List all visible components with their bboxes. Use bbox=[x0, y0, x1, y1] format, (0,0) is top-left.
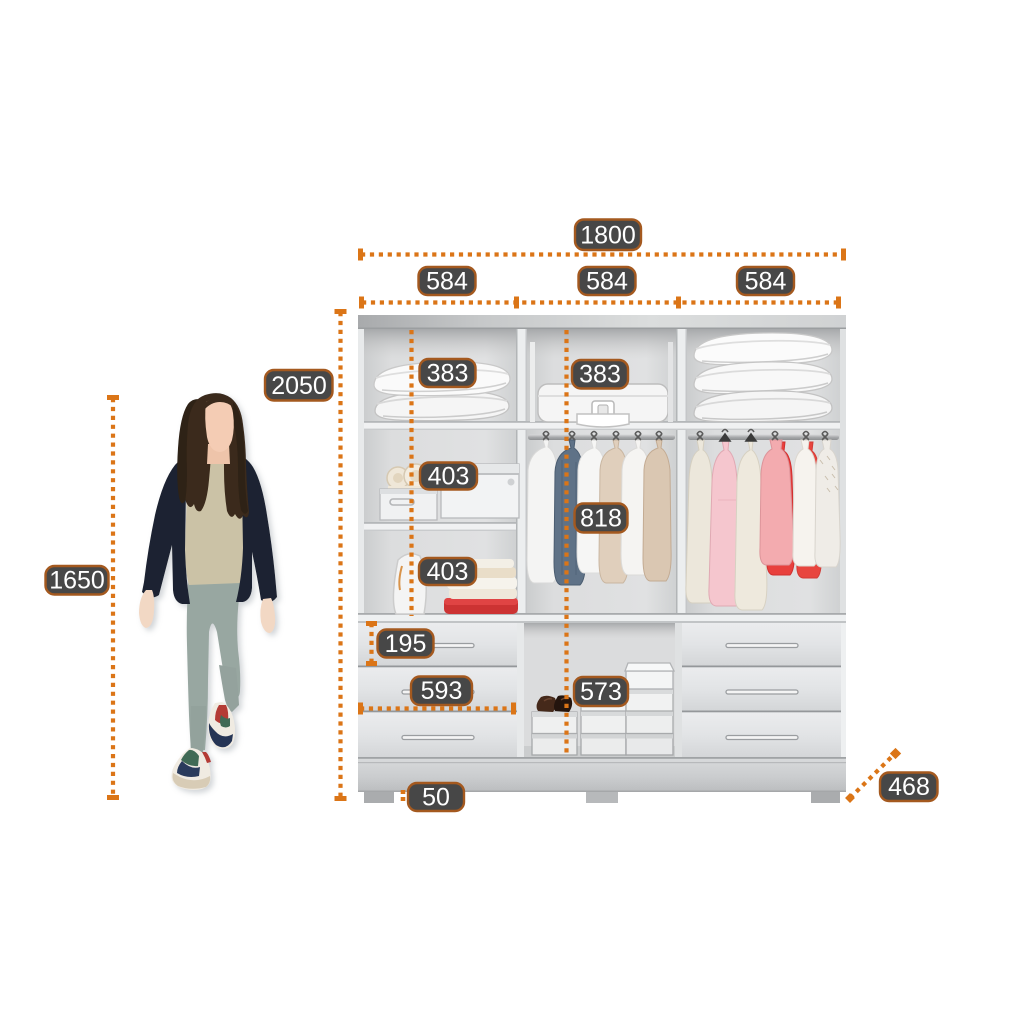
svg-text:195: 195 bbox=[385, 630, 427, 658]
svg-text:818: 818 bbox=[580, 505, 622, 533]
svg-text:50: 50 bbox=[422, 784, 450, 812]
svg-text:403: 403 bbox=[428, 463, 470, 491]
svg-text:383: 383 bbox=[579, 361, 621, 389]
svg-text:1800: 1800 bbox=[580, 222, 636, 250]
svg-text:1650: 1650 bbox=[49, 567, 105, 595]
svg-text:468: 468 bbox=[888, 773, 930, 801]
svg-text:573: 573 bbox=[580, 678, 622, 706]
svg-text:403: 403 bbox=[427, 558, 469, 586]
svg-text:584: 584 bbox=[586, 268, 628, 296]
svg-text:383: 383 bbox=[427, 360, 469, 388]
svg-text:584: 584 bbox=[745, 268, 787, 296]
svg-text:2050: 2050 bbox=[271, 372, 327, 400]
svg-text:584: 584 bbox=[426, 268, 468, 296]
svg-text:593: 593 bbox=[421, 677, 463, 705]
